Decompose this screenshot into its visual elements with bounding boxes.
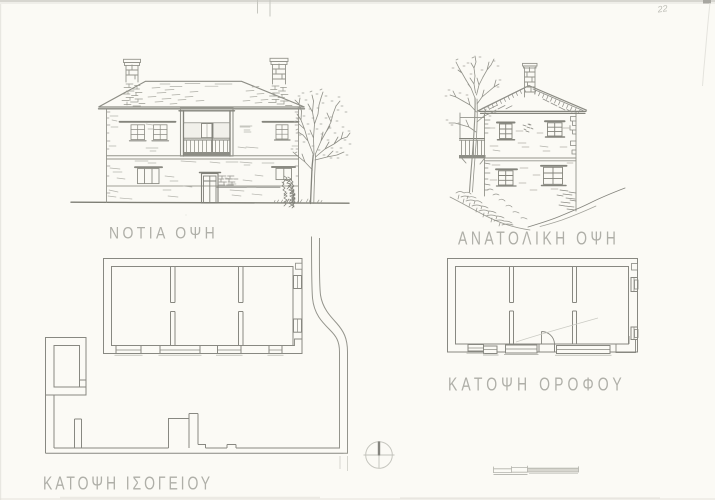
svg-text:ΚΑΤΟΨΗ ΙΣΟΓΕΙΟΥ: ΚΑΤΟΨΗ ΙΣΟΓΕΙΟΥ [43, 474, 213, 494]
svg-text:ΝΟΤΙΑ ΟΨΗ: ΝΟΤΙΑ ΟΨΗ [109, 224, 218, 242]
svg-text:ΑΝΑΤΟΛΙΚΗ ΟΨΗ: ΑΝΑΤΟΛΙΚΗ ΟΨΗ [458, 229, 619, 249]
svg-text:22: 22 [656, 3, 668, 14]
svg-text:ΚΑΤΟΨΗ ΟΡΟΦΟΥ: ΚΑΤΟΨΗ ΟΡΟΦΟΥ [448, 375, 626, 395]
